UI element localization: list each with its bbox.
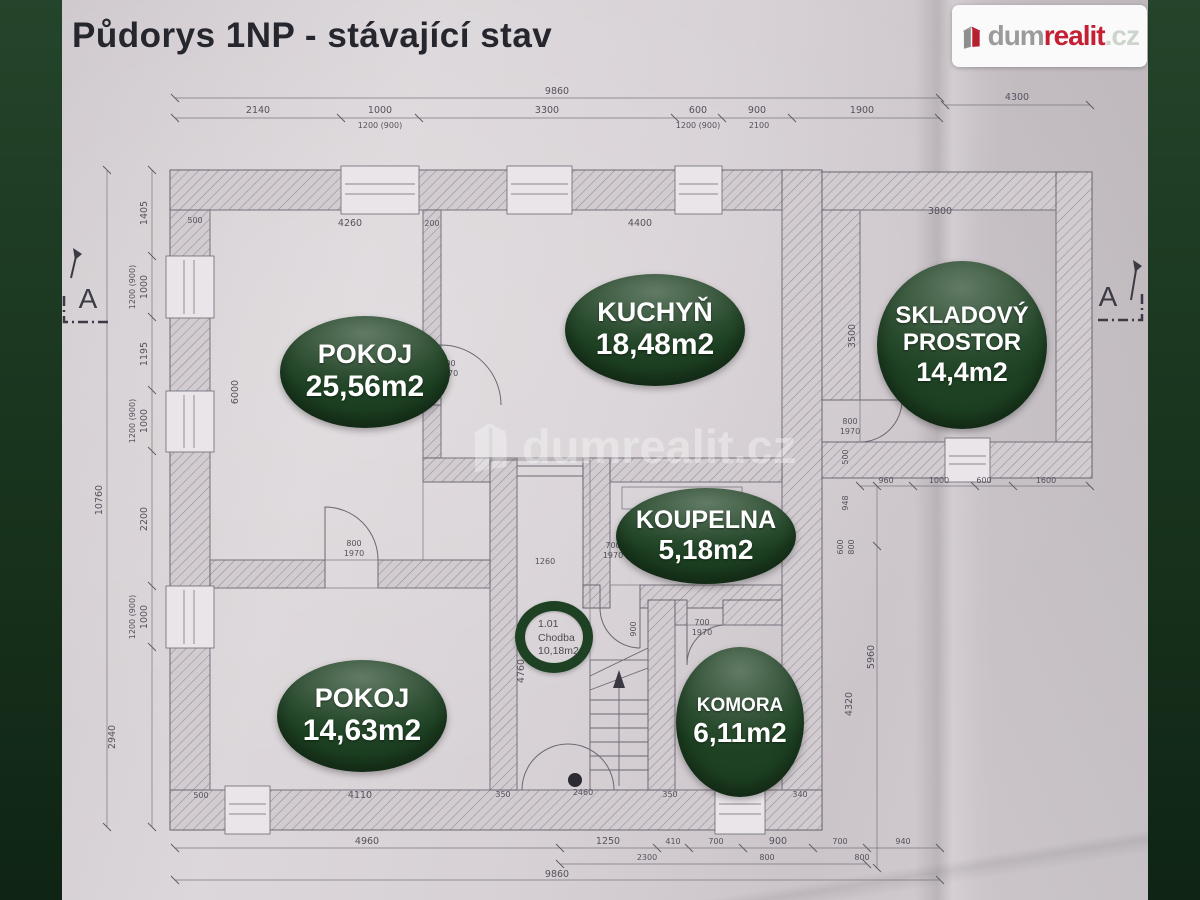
svg-text:1600: 1600 [1036,476,1056,485]
svg-text:900: 900 [629,621,638,636]
svg-text:1970: 1970 [840,427,860,436]
svg-text:1970: 1970 [692,628,712,637]
svg-text:600: 600 [689,105,707,116]
room-number: 1.01 [538,618,628,632]
logo-dum: dum [988,20,1044,51]
svg-text:4300: 4300 [1005,92,1029,103]
room-badge-pokoj-2: POKOJ 14,63m2 [277,660,447,772]
svg-text:A: A [1099,281,1118,312]
svg-text:700: 700 [708,837,723,846]
badge-room-name: PROSTOR [903,329,1021,357]
dumrealit-house-icon [960,12,984,60]
svg-text:1000: 1000 [929,476,949,485]
svg-text:200: 200 [424,219,439,228]
page: 986021401000330060090019001200 (900)1200… [0,0,1200,900]
svg-text:1200 (900): 1200 (900) [128,595,137,639]
svg-text:1195: 1195 [139,342,150,366]
svg-text:1900: 1900 [850,105,874,116]
svg-text:1200 (900): 1200 (900) [676,121,720,130]
svg-text:500: 500 [841,449,850,464]
svg-text:5960: 5960 [866,645,877,669]
svg-text:1970: 1970 [603,551,623,560]
badge-room-name: KUCHYŇ [597,297,713,328]
svg-text:3800: 3800 [928,206,952,217]
svg-text:940: 940 [895,837,910,846]
room-name: Chodba [538,632,628,646]
svg-text:2200: 2200 [139,507,150,531]
room-badge-chodba-text: 1.01 Chodba 10,18m2 [538,618,628,659]
svg-text:1200 (900): 1200 (900) [128,265,137,309]
svg-text:4320: 4320 [844,692,855,716]
svg-text:4960: 4960 [355,836,379,847]
svg-text:500: 500 [193,791,208,800]
svg-text:1405: 1405 [139,201,150,225]
svg-text:800: 800 [842,417,857,426]
svg-text:500: 500 [187,216,202,225]
svg-text:1000: 1000 [139,409,150,433]
section-marker-left: A [64,248,110,322]
badge-room-area: 6,11m2 [693,717,786,749]
svg-text:600: 600 [836,539,845,554]
svg-text:410: 410 [665,837,680,846]
badge-room-name: POKOJ [315,683,410,714]
plan-dot [568,773,582,787]
logo-cz: .cz [1105,20,1139,51]
svg-text:900: 900 [748,105,766,116]
section-marker-right: A [1098,260,1142,320]
svg-text:350: 350 [662,790,677,799]
room-badge-kuchyn: KUCHYŇ 18,48m2 [565,274,745,386]
svg-text:800: 800 [847,539,856,554]
svg-text:4260: 4260 [338,218,362,229]
svg-text:1970: 1970 [344,549,364,558]
floorplan-paper: 986021401000330060090019001200 (900)1200… [62,0,1148,900]
svg-text:600: 600 [976,476,991,485]
svg-text:9860: 9860 [545,869,569,880]
dumrealit-logo[interactable]: dumrealit.cz [952,5,1147,67]
svg-text:2100: 2100 [749,121,769,130]
svg-text:4760: 4760 [516,659,527,683]
svg-text:10760: 10760 [94,485,105,515]
room-badge-komora: KOMORA 6,11m2 [676,647,804,797]
svg-text:1250: 1250 [596,836,620,847]
svg-text:900: 900 [769,836,787,847]
svg-text:2140: 2140 [246,105,270,116]
svg-text:700: 700 [694,618,709,627]
svg-text:1260: 1260 [535,557,555,566]
badge-room-name: KOMORA [697,695,784,717]
svg-text:4110: 4110 [348,790,372,801]
badge-room-area: 18,48m2 [596,328,714,363]
svg-text:340: 340 [792,790,807,799]
badge-room-area: 5,18m2 [659,534,754,566]
badge-room-name: POKOJ [318,339,413,370]
svg-text:1000: 1000 [368,105,392,116]
badge-room-area: 25,56m2 [306,370,424,405]
svg-text:1200 (900): 1200 (900) [358,121,402,130]
svg-text:1000: 1000 [139,605,150,629]
room-badge-pokoj-1: POKOJ 25,56m2 [280,316,450,428]
room-badge-koupelna: KOUPELNA 5,18m2 [616,488,796,584]
logo-realit: realit [1044,20,1105,51]
svg-text:2460: 2460 [573,788,593,797]
svg-text:700: 700 [832,837,847,846]
page-title: Půdorys 1NP - stávající stav [72,16,552,56]
svg-text:800: 800 [854,853,869,862]
stair-direction-arrow [613,670,625,688]
svg-text:2300: 2300 [637,853,657,862]
svg-text:350: 350 [495,790,510,799]
svg-text:2940: 2940 [107,725,118,749]
room-badge-skladovy-prostor: SKLADOVÝ PROSTOR 14,4m2 [877,261,1047,429]
svg-text:1200 (900): 1200 (900) [128,399,137,443]
badge-room-name: KOUPELNA [636,506,776,535]
room-area: 10,18m2 [538,645,628,659]
floorplan-drawing: 986021401000330060090019001200 (900)1200… [62,0,1148,900]
svg-text:6000: 6000 [230,380,241,404]
svg-text:800: 800 [759,853,774,862]
svg-text:3300: 3300 [535,105,559,116]
badge-room-area: 14,4m2 [916,357,1008,388]
badge-room-area: 14,63m2 [303,714,421,749]
svg-text:960: 960 [878,476,893,485]
svg-text:A: A [79,283,98,314]
svg-text:3500: 3500 [847,324,858,348]
svg-text:948: 948 [841,495,850,510]
badge-room-name: SKLADOVÝ [895,302,1028,330]
svg-text:4400: 4400 [628,218,652,229]
svg-text:800: 800 [346,539,361,548]
svg-text:1000: 1000 [139,275,150,299]
logo-wordmark: dumrealit.cz [988,20,1139,52]
stairs [568,648,648,790]
svg-text:9860: 9860 [545,86,569,97]
